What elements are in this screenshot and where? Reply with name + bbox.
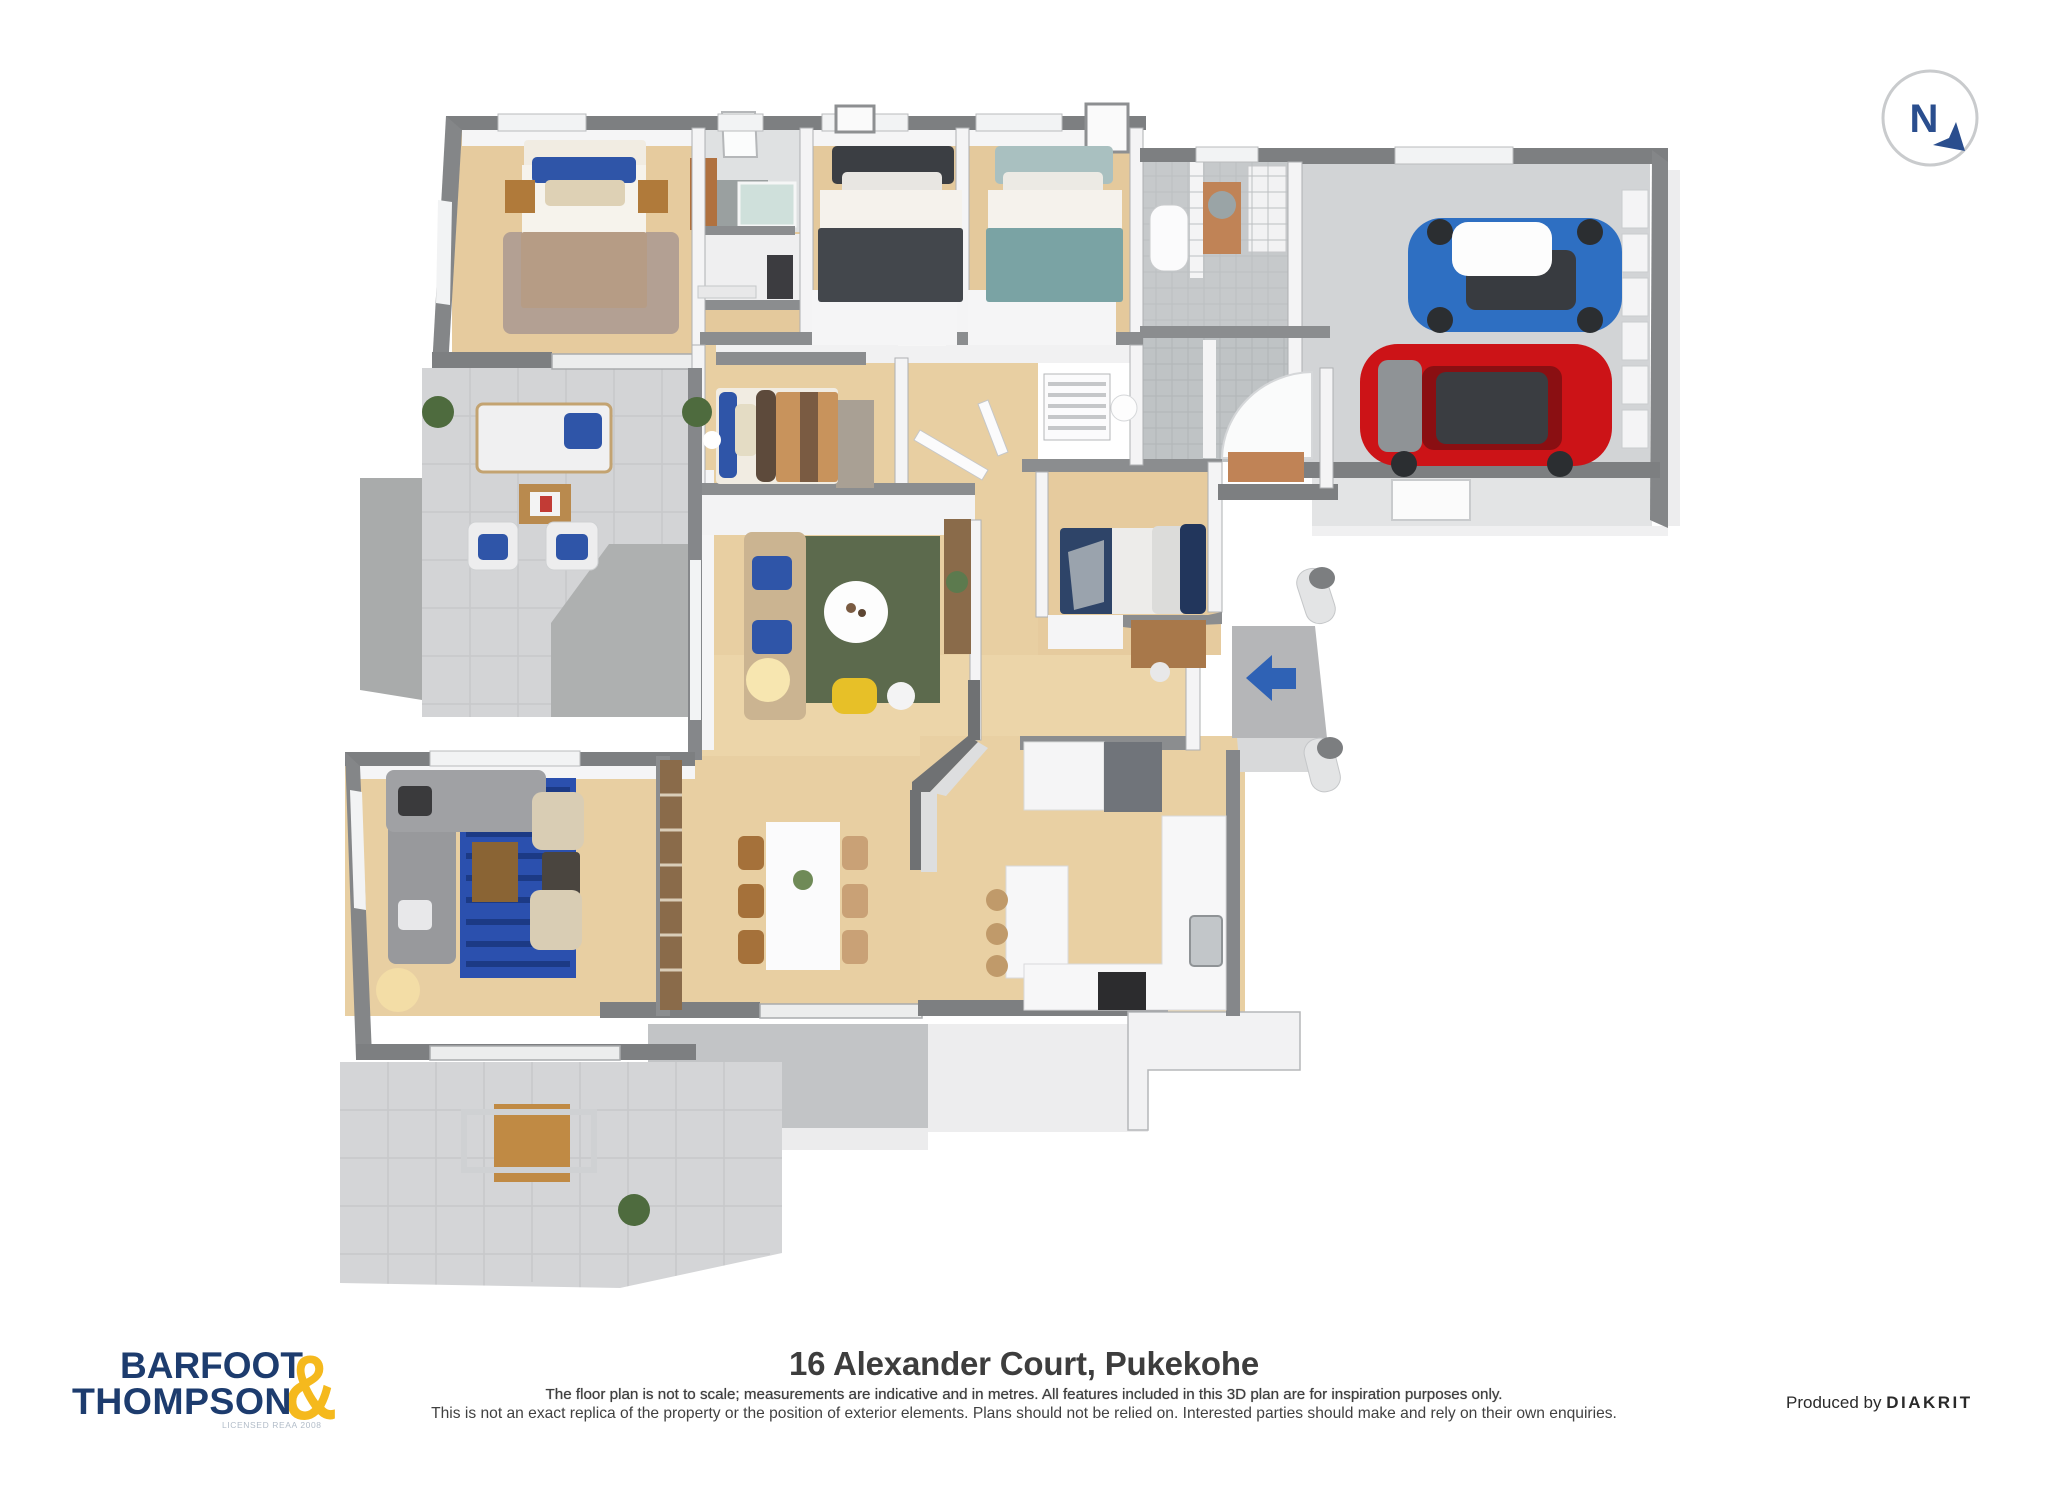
svg-text:N: N: [1910, 97, 1939, 141]
